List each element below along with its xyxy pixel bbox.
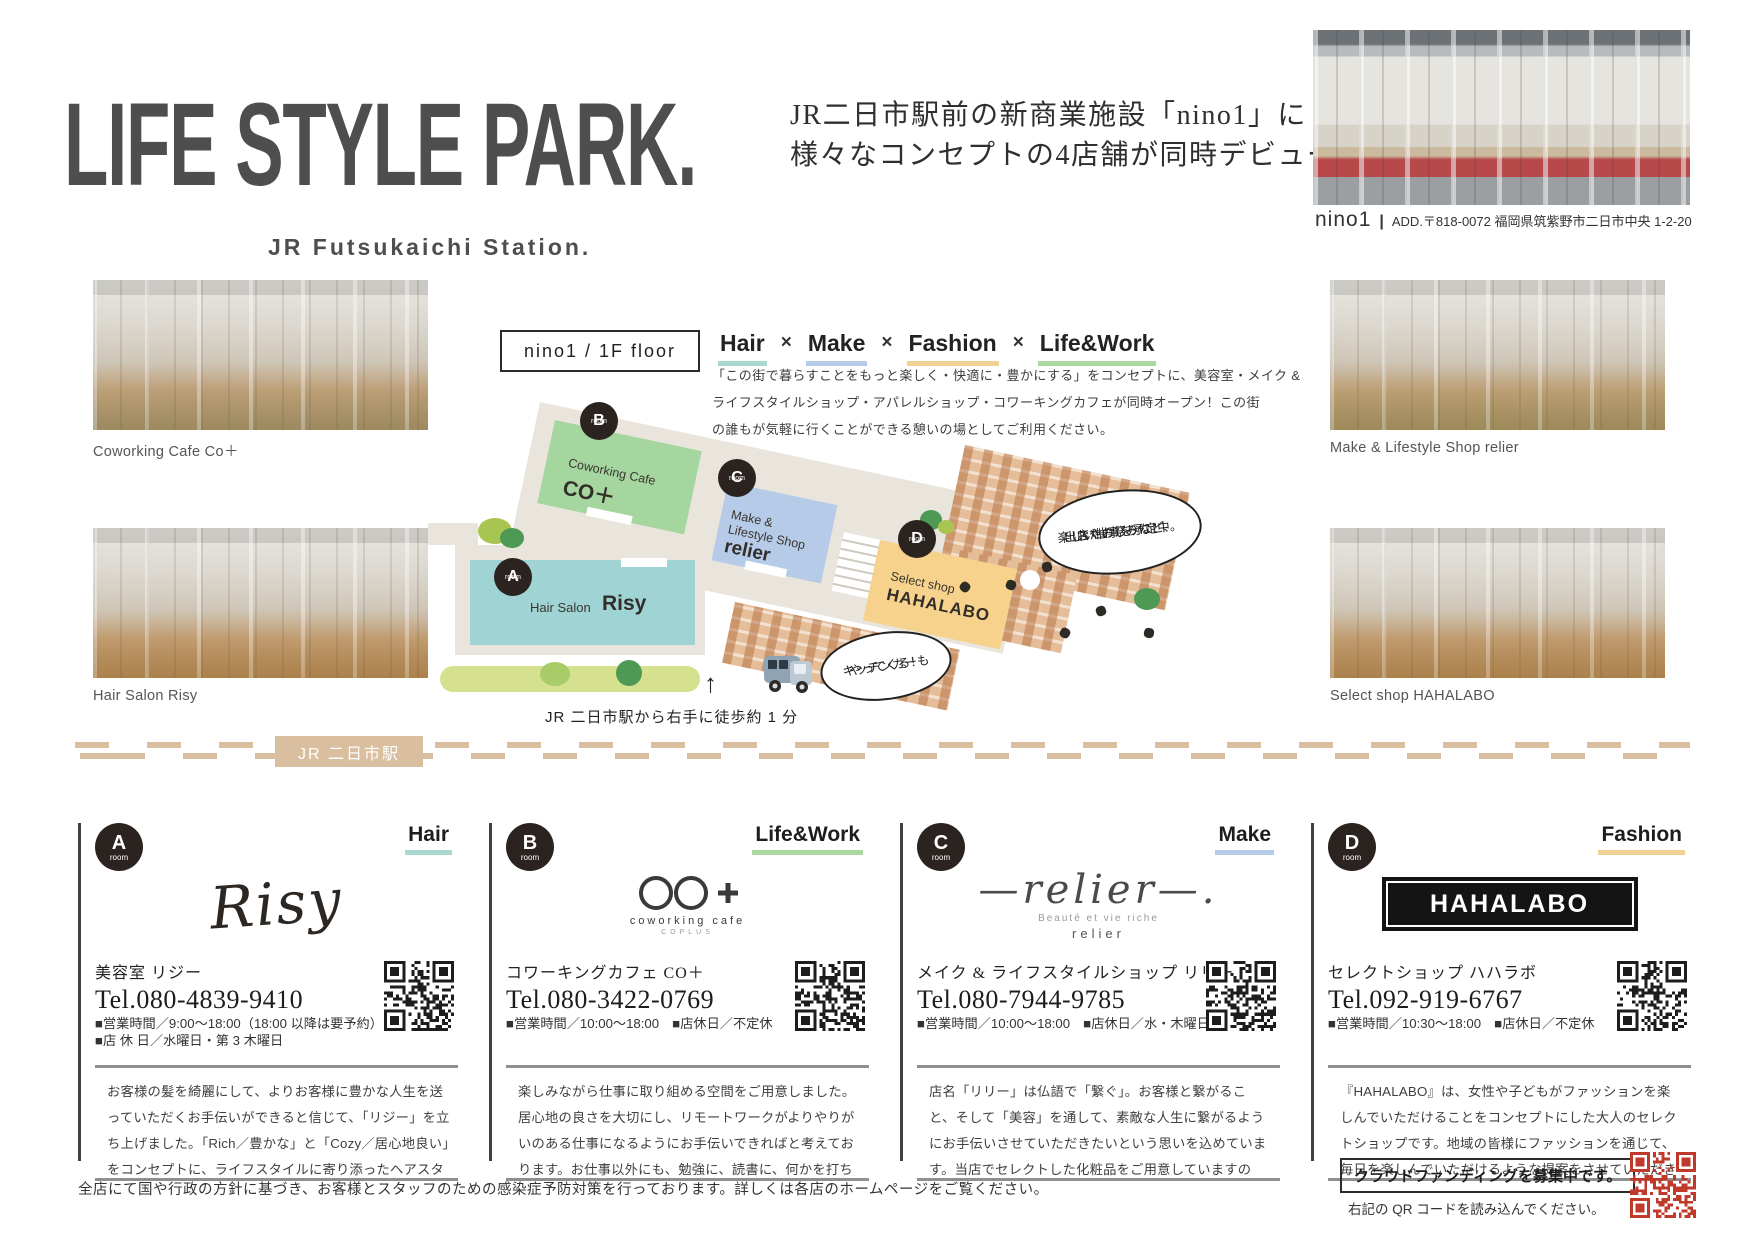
- station-label: JR 二日市駅: [275, 736, 423, 767]
- tree: [616, 660, 642, 686]
- caption-coworking-cafe: Coworking Cafe Co＋: [93, 440, 239, 461]
- tagline: JR二日市駅前の新商業施設「nino1」に 様々なコンセプトの4店舗が同時デビュ…: [790, 96, 1366, 176]
- caption-separator: |: [1379, 213, 1383, 231]
- tree: [938, 520, 954, 534]
- room-a-badge: A room: [95, 823, 143, 871]
- kitchen-bubble-line2: やってくる！: [848, 653, 923, 679]
- category-heading: Hair × Make × Fashion × Life&Work: [718, 330, 1156, 366]
- shop-info: セレクトショップ ハハラボ Tel.092-919-6767 ■営業時間／10:…: [1328, 959, 1691, 1051]
- room-c-badge: C room: [917, 823, 965, 871]
- shop-description: お客様の髪を綺麗にして、よりお客様に豊かな人生を送っていただくお手伝いができると…: [95, 1065, 458, 1181]
- crowdfunding-instruction: 右記の QR コードを読み込んでください。: [1348, 1198, 1605, 1218]
- room-letter: B: [523, 833, 537, 853]
- photo-texture: [93, 528, 428, 678]
- coplus-logo-icon: [636, 873, 740, 913]
- tagline-line2: 様々なコンセプトの4店舗が同時デビュー！: [790, 136, 1366, 176]
- building-caption: nino1 | ADD.〒818-0072 福岡県筑紫野市二日市中央 1-2-2…: [1315, 208, 1695, 232]
- walk-note: JR 二日市駅から右手に徒歩約 1 分: [545, 706, 798, 727]
- photo-texture: [93, 280, 428, 430]
- shop-closed: ■店 休 日／水曜日・第 3 木曜日: [95, 1032, 458, 1049]
- photo-coworking-cafe: [93, 280, 428, 430]
- room-letter: D: [1345, 833, 1359, 853]
- room-c-badge: C room: [718, 459, 756, 497]
- photo-select-shop: [1330, 528, 1665, 678]
- tree: [1134, 588, 1160, 610]
- floor-map: Coworking Cafe CO＋ Make & Lifestyle Shop…: [420, 390, 1310, 712]
- room-b-badge: B room: [506, 823, 554, 871]
- photo-texture: [1330, 280, 1665, 430]
- photo-texture: [1330, 528, 1665, 678]
- patio-chair: [1095, 605, 1108, 618]
- photo-make-shop: [1330, 280, 1665, 430]
- page-subtitle: JR Futsukaichi Station.: [268, 234, 591, 261]
- category-label-lifework: Life&Work: [752, 823, 863, 855]
- category-make: Make: [806, 330, 868, 366]
- tree: [500, 528, 524, 548]
- event-bubble-line3: おたのしみに！: [1076, 519, 1165, 544]
- room-a-sub: room: [505, 574, 521, 581]
- coplus-logo: coworking cafe COPLUS: [630, 873, 745, 936]
- logo-area: Risy: [95, 863, 458, 945]
- facility-name: nino1: [1315, 208, 1371, 232]
- facility-address: ADD.〒818-0072 福岡県筑紫野市二日市中央 1-2-20: [1392, 211, 1692, 230]
- category-label-make: Make: [1215, 823, 1274, 855]
- photo-hair-salon: [93, 528, 428, 678]
- crowdfunding-qr-code: [1630, 1152, 1696, 1218]
- patio-table: [1020, 570, 1040, 590]
- building-photo: [1313, 30, 1690, 205]
- shop-column-hahalabo: D room Fashion HAHALABO セレクトショップ ハハラボ Te…: [1311, 823, 1691, 1161]
- room-sub: room: [932, 854, 950, 862]
- room-sub: room: [1343, 854, 1361, 862]
- shop-info: メイク & ライフスタイルショップ リリー Tel.080-7944-9785 …: [917, 959, 1280, 1051]
- logo-area: —relier—. Beauté et vie riche relier: [917, 863, 1280, 945]
- category-separator: ×: [1013, 330, 1024, 354]
- logo-area: HAHALABO: [1328, 863, 1691, 945]
- shop-column-risy: A room Hair Risy 美容室 リジー Tel.080-4839-94…: [78, 823, 458, 1161]
- qr-code: [1617, 961, 1687, 1031]
- tagline-line1: JR二日市駅前の新商業施設「nino1」に: [790, 96, 1366, 136]
- page-title: LIFE STYLE PARK.: [64, 86, 696, 204]
- category-lifework: Life&Work: [1038, 330, 1157, 366]
- relier-logo: —relier—. Beauté et vie riche relier: [979, 867, 1219, 941]
- relier-logo-sub2: relier: [1072, 926, 1125, 941]
- caption-make-shop: Make & Lifestyle Shop relier: [1330, 440, 1519, 456]
- room-a-badge: A room: [494, 558, 532, 596]
- room-sub: room: [521, 854, 539, 862]
- room-b-sub: room: [591, 418, 607, 425]
- room-b-badge: B room: [580, 402, 618, 440]
- map-description-line1: 「この街で暮らすことをもっと楽しく・快適に・豊かにする」をコンセプトに、美容室・…: [712, 362, 1301, 389]
- category-label-fashion: Fashion: [1598, 823, 1685, 855]
- room-d-badge: D room: [898, 520, 936, 558]
- caption-hair-salon: Hair Salon Risy: [93, 688, 197, 704]
- room-c-type: Make & Lifestyle Shop: [730, 508, 733, 523]
- category-separator: ×: [881, 330, 892, 354]
- qr-code: [795, 961, 865, 1031]
- room-a-name: Risy: [602, 592, 646, 616]
- caption-select-shop: Select shop HAHALABO: [1330, 688, 1495, 704]
- coplus-logo-sub1: coworking cafe: [630, 915, 745, 927]
- flyer-page: LIFE STYLE PARK. JR Futsukaichi Station.…: [0, 0, 1752, 1241]
- floor-label: nino1 / 1F floor: [500, 330, 700, 372]
- patio-chair: [1143, 627, 1155, 639]
- relier-logo-text: relier: [1023, 867, 1158, 913]
- relier-logo-sub1: Beauté et vie riche: [1038, 913, 1159, 924]
- category-hair: Hair: [718, 330, 767, 366]
- room-letter: C: [934, 833, 948, 853]
- photo-texture: [1313, 30, 1690, 205]
- logo-area: coworking cafe COPLUS: [506, 863, 869, 945]
- room-sub: room: [110, 854, 128, 862]
- walk-direction-arrow: ↑: [704, 668, 717, 699]
- hahalabo-logo: HAHALABO: [1382, 877, 1638, 931]
- relier-logo-script: —relier—.: [979, 867, 1219, 913]
- crowdfunding-headline: クラウドファンディングを募集中です。: [1340, 1158, 1635, 1193]
- tree: [540, 662, 570, 686]
- room-c-sub: room: [729, 475, 745, 482]
- category-separator: ×: [781, 330, 792, 354]
- room-d-sub: room: [909, 536, 925, 543]
- shop-info: コワーキングカフェ CO＋ Tel.080-3422-0769 ■営業時間／10…: [506, 959, 869, 1051]
- grass: [440, 666, 700, 692]
- hahalabo-logo-text: HAHALABO: [1386, 881, 1634, 927]
- qr-code: [384, 961, 454, 1031]
- room-a-type: Hair Salon: [530, 600, 591, 615]
- shop-column-coplus: B room Life&Work coworking cafe COPLUS コ…: [489, 823, 869, 1161]
- map-walkway: [428, 523, 478, 545]
- shop-info: 美容室 リジー Tel.080-4839-9410 ■営業時間／9:00～18:…: [95, 959, 458, 1051]
- qr-code: [1206, 961, 1276, 1031]
- door-notch: [621, 558, 667, 567]
- category-fashion: Fashion: [907, 330, 999, 366]
- kitchen-car-icon: [758, 648, 818, 696]
- risy-logo: Risy: [208, 865, 345, 942]
- coplus-logo-sub2: COPLUS: [661, 929, 714, 936]
- room-d-badge: D room: [1328, 823, 1376, 871]
- shop-column-relier: C room Make —relier—. Beauté et vie rich…: [900, 823, 1280, 1161]
- room-letter: A: [112, 833, 126, 853]
- shop-description: 店名「リリー」は仏語で「繋ぐ」。お客様と繋がること、そして「美容」を通して、素敵…: [917, 1065, 1280, 1181]
- patio-table: [1072, 614, 1092, 634]
- category-label-hair: Hair: [405, 823, 452, 855]
- covid-note: 全店にて国や行政の方針に基づき、お客様とスタッフのための感染症予防対策を行ってお…: [78, 1178, 1049, 1199]
- shop-description: 楽しみながら仕事に取り組める空間をご用意しました。居心地の良さを大切にし、リモー…: [506, 1065, 869, 1181]
